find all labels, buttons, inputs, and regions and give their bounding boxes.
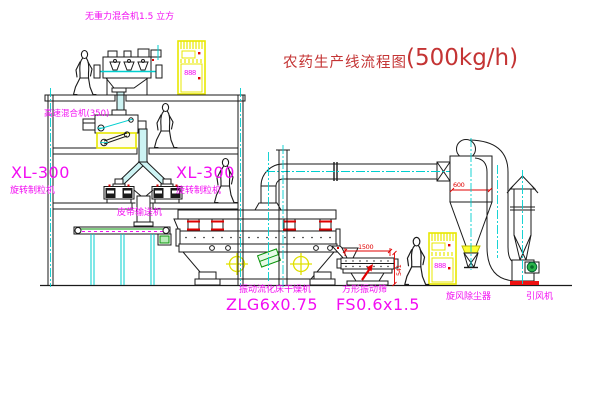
belt-conveyor bbox=[74, 227, 171, 285]
person-ground bbox=[405, 237, 429, 284]
cyclone bbox=[450, 138, 517, 281]
cabinet1-display: 888 bbox=[184, 70, 196, 77]
diagram-title: 农药生产线流程图 bbox=[283, 56, 407, 71]
fluid-bed-dryer bbox=[174, 210, 354, 285]
process-flow-diagram: 无重力混合机1.5 立方 农药生产线流程图 (500kg/h) 高速混合机(35… bbox=[0, 0, 600, 403]
person-level2 bbox=[155, 104, 178, 148]
screen-height-dimension: 541 bbox=[396, 264, 403, 276]
granulator-right-model: XL-300 bbox=[176, 165, 235, 181]
dryer-model-label: ZLG6x0.75 bbox=[226, 297, 318, 313]
diagram-title-capacity: (500kg/h) bbox=[406, 47, 518, 70]
granulator-left-model: XL-300 bbox=[11, 165, 70, 181]
person-roof bbox=[74, 51, 97, 95]
cyclone-dia-dimension: 600 bbox=[453, 182, 465, 189]
screen-length-dimension: 1500 bbox=[358, 244, 373, 251]
dryer-label: 振动流化床干燥机 bbox=[239, 286, 311, 295]
cyclone-label: 旋风除尘器 bbox=[446, 293, 491, 302]
granulator-left bbox=[103, 179, 136, 203]
control-cabinet-1 bbox=[178, 41, 205, 94]
control-cabinet-2 bbox=[429, 233, 456, 284]
granulator-left-label: 旋转制粒机 bbox=[10, 187, 55, 196]
screen-model-label: FS0.6x1.5 bbox=[336, 297, 420, 313]
cabinet2-display: 888 bbox=[434, 263, 446, 270]
high-speed-mixer-label: 高速混合机(350) bbox=[44, 110, 109, 119]
fan-label: 引风机 bbox=[526, 293, 553, 302]
gravity-mixer-label: 无重力混合机1.5 立方 bbox=[85, 13, 174, 22]
granulator-right-label: 旋转制粒机 bbox=[176, 187, 221, 196]
induced-draft-fan bbox=[510, 260, 539, 285]
vibrating-screen bbox=[337, 248, 398, 286]
screen-label: 方形振动筛 bbox=[342, 286, 387, 295]
belt-conveyor-label: 皮带输送机 bbox=[117, 209, 162, 218]
